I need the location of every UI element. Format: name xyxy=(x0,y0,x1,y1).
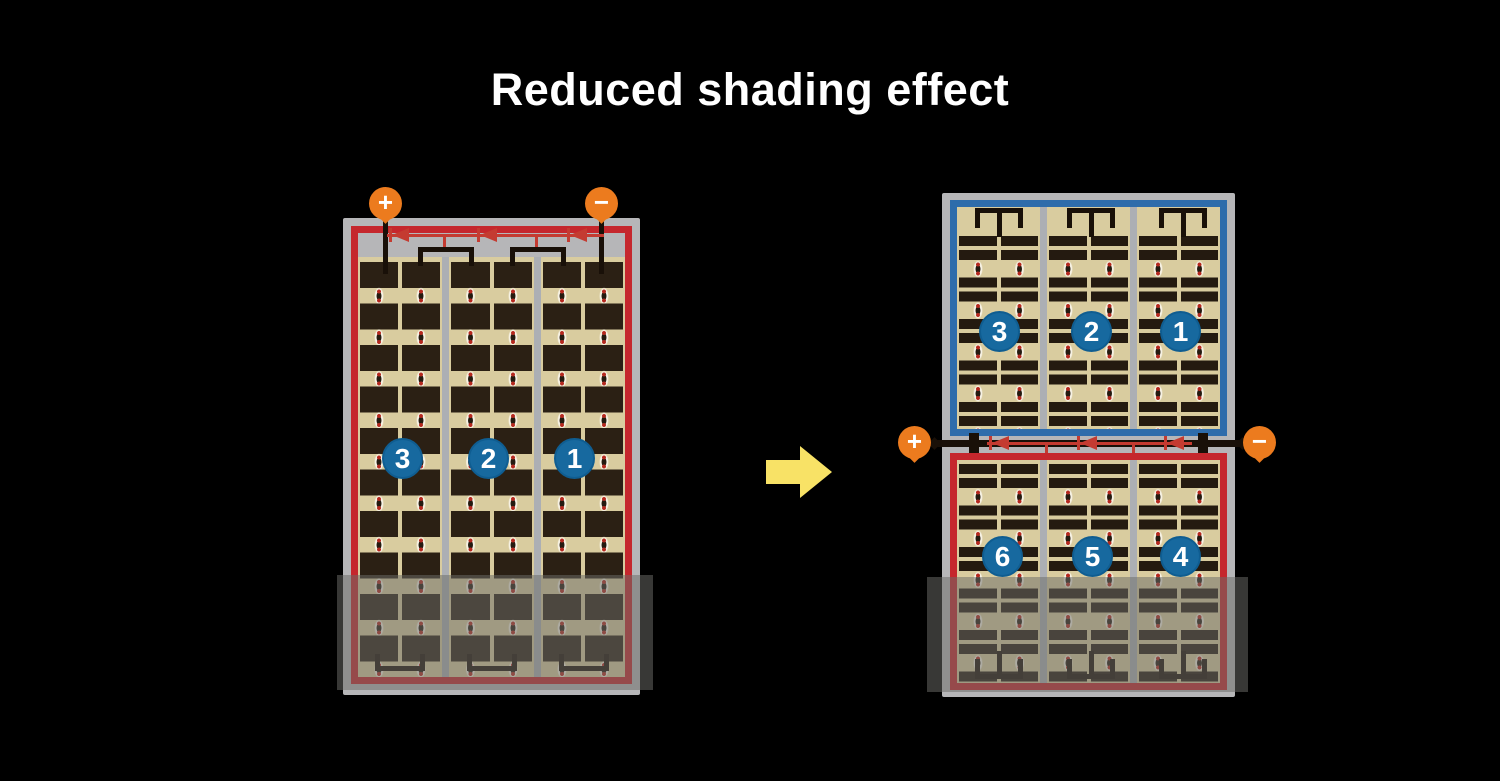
bridge-stem xyxy=(997,213,1002,237)
string-badge-3: 3 xyxy=(382,438,423,479)
string-badge-4: 4 xyxy=(1160,536,1201,577)
shading-overlay xyxy=(337,575,653,690)
diode-icon xyxy=(1077,435,1099,451)
group-separator xyxy=(1040,207,1047,429)
positive-terminal: + xyxy=(369,187,402,220)
shading-overlay xyxy=(927,577,1248,692)
wire-junction-stub xyxy=(969,433,979,454)
diode-icon xyxy=(567,227,589,243)
string-badge-1: 1 xyxy=(554,438,595,479)
string-badge-1: 1 xyxy=(1160,311,1201,352)
bridge-stem xyxy=(1181,213,1186,237)
negative-terminal: − xyxy=(1243,426,1276,459)
series-bridge-top xyxy=(418,247,474,266)
minus-icon: − xyxy=(585,187,618,220)
plus-icon: + xyxy=(898,426,931,459)
negative-terminal: − xyxy=(585,187,618,220)
string-badge-2: 2 xyxy=(468,438,509,479)
diode-icon xyxy=(989,435,1011,451)
page-title: Reduced shading effect xyxy=(0,64,1500,116)
series-bridge-top xyxy=(510,247,566,266)
string-badge-6: 6 xyxy=(982,536,1023,577)
left-panel-conventional: 3 2 1 + − xyxy=(343,218,640,695)
string-badge-3: 3 xyxy=(979,311,1020,352)
diagram-canvas: Reduced shading effect xyxy=(0,0,1500,781)
bridge-stem xyxy=(1089,213,1094,237)
wire-junction-stub xyxy=(1198,433,1208,454)
diode-icon xyxy=(389,227,411,243)
group-separator xyxy=(1130,207,1137,429)
string-badge-2: 2 xyxy=(1071,311,1112,352)
positive-terminal: + xyxy=(898,426,931,459)
right-panel-split: 3 2 1 xyxy=(942,193,1235,697)
minus-icon: − xyxy=(1243,426,1276,459)
diode-icon xyxy=(477,227,499,243)
string-badge-5: 5 xyxy=(1072,536,1113,577)
diode-icon xyxy=(1164,435,1186,451)
plus-icon: + xyxy=(369,187,402,220)
right-arrow-icon xyxy=(766,446,832,498)
